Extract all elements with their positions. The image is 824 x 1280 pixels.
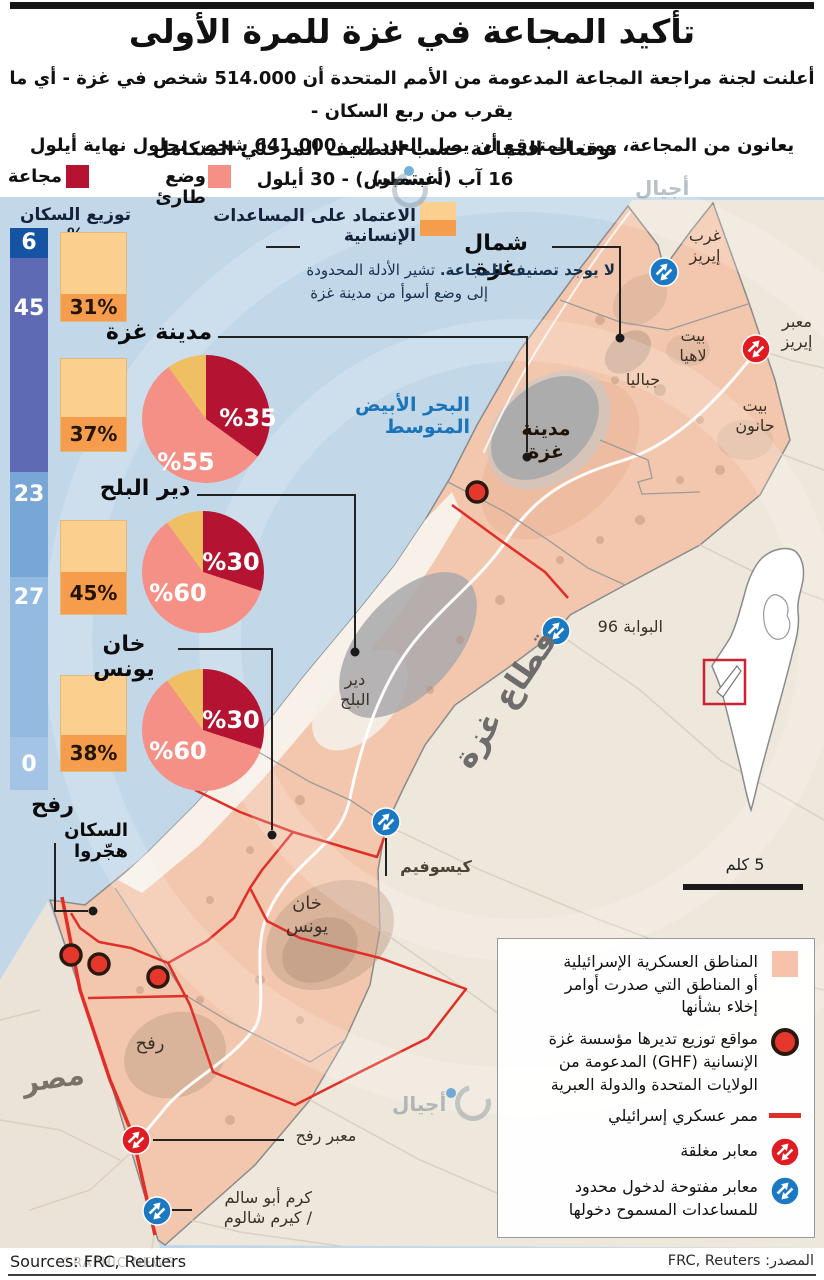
label-khan-map: خانيونس [272,893,342,938]
label-beit-hanoun: بيتحانون [722,396,788,436]
aid-bar-deir: 45% [60,520,127,615]
population-value: 27 [10,585,48,610]
ghf-site-dot [89,954,109,974]
aid-bar-fill: 31% [61,294,126,321]
bottom-rule [8,1274,816,1276]
famine-color-swatch [66,165,89,188]
region-name-gaza-city: مدينة غزة [103,320,215,345]
map-legend-box: المناطق العسكرية الإسرائيلية أو المناطق … [497,938,815,1238]
aid-swatch-light [420,202,456,220]
sea-label: البحر الأبيض المتوسط [290,394,470,438]
aid-bar-north: 31% [60,232,127,322]
aid-bar-khan: 38% [60,675,127,772]
legend-row-ghf-sites: مواقع توزيع تديرها مؤسسة غزة الإنسانية (… [506,1028,802,1096]
pie-famine-label: %35 [210,404,286,432]
region-name-rafah: رفح [14,793,74,818]
north-gaza-note-line1: لا يوجد تصنيف للمجاعة. تشير الأدلة المحد… [285,261,615,279]
chart-subtitle: توقعات المجاعة حسب التصنيف المرحلي المتك… [0,138,770,160]
corridor-line-icon [769,1113,801,1118]
open-crossing-icon [372,808,400,836]
ghf-site-dot [61,945,81,965]
population-value: 45 [10,296,48,321]
emergency-legend-label: وضع طارئ [120,166,206,208]
pie-famine-label: %30 [196,548,266,576]
emergency-color-swatch [208,165,231,188]
aid-dependence-header: الاعتماد على المساعدات الإنسانية [182,206,416,246]
aid-bar-fill: 37% [61,417,126,451]
pie-emergency-label: %60 [143,579,213,607]
label-gate-96: البوابة 96 [578,617,663,637]
population-value: 6 [10,230,48,255]
open-crossing-icon [143,1197,171,1225]
aid-pct-label: 45% [70,581,118,605]
label-kissufim: كيسوفيم [398,857,474,877]
label-west-erez: غربإيريز [676,226,734,266]
closed-crossing-icon [742,335,770,363]
label-erez-crossing: معبرإيريز [772,312,822,352]
legend-row-corridor: ممر عسكري إسرائيلي [506,1105,802,1128]
pie-emergency-label: %60 [143,737,213,765]
label-beit-lahia: بيتلاهيا [662,326,724,366]
population-segment-gaza-city [10,258,48,472]
watermark-text: أجيال [635,176,689,200]
sources-arabic: المصدر: FRC, Reuters [668,1253,814,1269]
pie-famine-label: %30 [196,706,266,734]
intro-line-1: أعلنت لجنة مراجعة المجاعة المدعومة من ال… [8,62,816,129]
aid-pct-label: 31% [70,295,118,319]
aid-bar-fill: 45% [61,572,126,614]
pie-emergency-label: %55 [148,448,224,476]
ghf-site-dot [148,967,168,987]
label-deir-map: ديرالبلح [320,670,390,710]
label-rafah-map: رفح [122,1033,178,1056]
aid-bar-fill: 38% [61,735,126,771]
aid-bar-gaza-city: 37% [60,358,127,452]
watermark-text: أجيال [392,1092,446,1116]
label-kerem-shalom: كرم أبو سالم/ كيرم شالوم [192,1188,312,1228]
label-gaza-city-map: مدينةغزة [510,418,582,464]
label-jabalia: جباليا [607,370,679,390]
population-value: 23 [10,482,48,507]
ghf-site-icon [771,1028,799,1056]
closed-crossing-icon [770,1137,800,1167]
closed-crossing-icon [122,1126,150,1154]
population-value: 0 [10,752,48,777]
open-crossing-icon [650,258,678,286]
scale-bar [683,884,803,890]
ghf-site-dot [467,482,487,502]
famine-legend-label: مجاعة [10,166,62,187]
legend-row-military-zones: المناطق العسكرية الإسرائيلية أو المناطق … [506,951,802,1019]
region-name-deir: دير البلح [95,476,195,501]
infographic-page: تأكيد المجاعة في غزة للمرة الأولى أعلنت … [0,0,824,1280]
region-name-khan: خان يونس [72,632,176,682]
north-gaza-note-rest: تشير الأدلة المحدودة [306,261,439,279]
north-gaza-note-line2: إلى وضع أسوأ من مدينة غزة [285,284,488,302]
aid-pct-label: 38% [70,741,118,765]
sources-english: Sources: FRC, Reuters [10,1252,186,1271]
label-rafah-crossing: معبر رفح [286,1126,366,1146]
watermark-dot [404,166,414,176]
aid-pct-label: 37% [70,422,118,446]
scale-label: 5 كلم [690,855,800,874]
rafah-displaced-note: السكان هجّروا [8,820,128,862]
watermark-dot [446,1088,456,1098]
legend-row-closed-crossings: معابر مغلقة [506,1137,802,1167]
top-rule [10,2,814,9]
legend-row-open-crossings: معابر مفتوحة لدخول محدود للمساعدات المسم… [506,1176,802,1221]
north-gaza-note-bold: لا يوجد تصنيف للمجاعة. [440,261,615,279]
page-title: تأكيد المجاعة في غزة للمرة الأولى [0,12,824,51]
military-zone-swatch [772,951,798,977]
open-crossing-icon [770,1176,800,1206]
